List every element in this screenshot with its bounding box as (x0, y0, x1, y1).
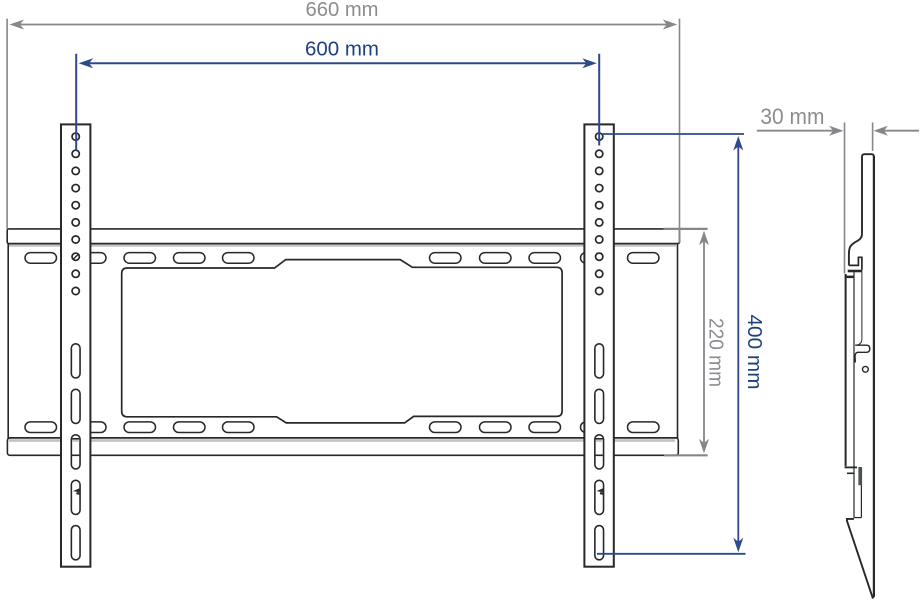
svg-text:400 mm: 400 mm (743, 315, 765, 390)
svg-text:600 mm: 600 mm (305, 39, 379, 61)
svg-text:220 mm: 220 mm (705, 318, 727, 387)
svg-text:660 mm: 660 mm (306, 0, 379, 21)
svg-text:30 mm: 30 mm (760, 104, 824, 129)
